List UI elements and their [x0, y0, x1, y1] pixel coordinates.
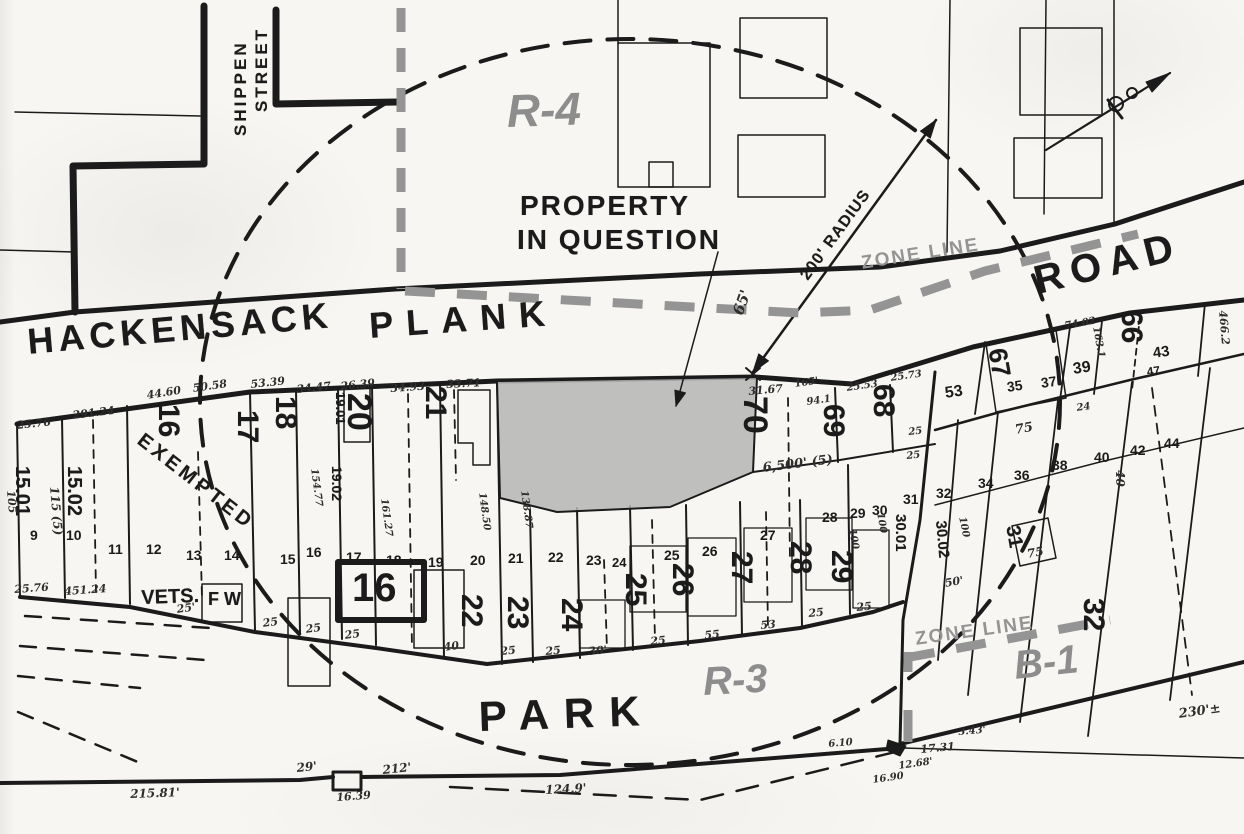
- dim-40-rot: 40: [1114, 470, 1126, 487]
- radius-arrowhead-bottom: [753, 354, 769, 372]
- fw-label: F W: [208, 590, 241, 608]
- building-outline: [738, 135, 825, 197]
- dim-466-2: 466.2: [1217, 310, 1231, 345]
- property-in-question-2: IN QUESTION: [517, 226, 721, 254]
- dim-25-76-top: 25.76: [16, 416, 51, 431]
- sublot-17: 17: [346, 550, 362, 564]
- bottom-street-line: [0, 748, 900, 783]
- property-line: [1044, 0, 1046, 214]
- dim-29-ft: 29': [296, 760, 318, 774]
- sublot-24: 24: [612, 556, 626, 569]
- lot-30-02: 30.02: [933, 520, 951, 559]
- sublot-25: 25: [664, 548, 680, 562]
- lot-23: 23: [502, 596, 532, 629]
- building-outline: [1020, 28, 1102, 115]
- dim-451-24: 451.24: [64, 583, 107, 597]
- sublot-40: 40: [1094, 450, 1110, 464]
- dim-26-39: 26.39: [340, 377, 375, 392]
- lot-32: 32: [1078, 598, 1108, 631]
- street-shippen-2: STREET: [253, 27, 270, 112]
- dim-25-f: 25: [500, 645, 516, 657]
- dim-25-d: 25: [305, 622, 322, 635]
- shippen-street-edge: [73, 6, 204, 312]
- lot-29: 29: [826, 550, 856, 583]
- sublot-32: 32: [936, 486, 952, 500]
- dim-105: 105: [5, 490, 18, 514]
- sublot-37: 37: [1040, 374, 1057, 390]
- building-outline: [458, 390, 490, 465]
- dim-25-j: 25: [856, 601, 872, 613]
- zone-b1: B-1: [1012, 639, 1080, 686]
- sublot-31: 31: [903, 492, 919, 506]
- sublot-14: 14: [224, 548, 240, 562]
- sublot-12: 12: [146, 542, 162, 556]
- property-in-question-parcel: [497, 377, 757, 512]
- property-line: [947, 0, 950, 252]
- lot-18: 18: [270, 396, 300, 429]
- lot-25: 25: [620, 573, 650, 606]
- dim-124-9: 124.9': [545, 782, 587, 796]
- property-in-question-1: PROPERTY: [520, 192, 690, 220]
- sublot-16: 16: [306, 545, 322, 559]
- sublot-21: 21: [508, 551, 524, 565]
- lot-20: 20: [342, 393, 376, 431]
- street-shippen: SHIPPEN: [232, 40, 249, 136]
- dim-16-39: 16.39: [336, 790, 371, 803]
- sublot-42: 42: [1130, 443, 1146, 457]
- lot-31-boxed: 31: [1002, 524, 1026, 549]
- sublot-39: 39: [1072, 360, 1092, 378]
- sublot-11: 11: [108, 542, 123, 556]
- bottom-street-monument: [333, 772, 361, 790]
- lot-22: 22: [456, 594, 486, 627]
- building-outline: [649, 162, 673, 187]
- sublot-26: 26: [702, 544, 718, 558]
- dim-25-h: 25: [650, 635, 666, 647]
- dim-25-a: 25: [908, 427, 923, 438]
- block-16: 16: [352, 568, 397, 608]
- sublot-44: 44: [1164, 436, 1180, 450]
- dim-75-lower: 75: [1026, 545, 1045, 560]
- dim-53-39: 53.39: [250, 375, 285, 390]
- sublot-13: 13: [186, 548, 202, 562]
- lot-19-02: 19.02: [330, 466, 344, 501]
- dim-17-31: 17.31: [920, 741, 955, 755]
- dim-53-b: 53: [760, 619, 776, 631]
- sublot-15: 15: [280, 552, 296, 566]
- lot-16: 16: [153, 404, 183, 437]
- block-30-lot-lines: [935, 368, 1244, 736]
- property-line: [15, 112, 200, 116]
- dim-30-ft: 30': [588, 644, 608, 657]
- dim-25-c: 25: [262, 616, 279, 629]
- sublot-29: 29: [850, 506, 866, 520]
- dim-75-upper: 75: [1014, 421, 1034, 437]
- dim-40-b: 40: [443, 640, 460, 653]
- zoning-map-scan: SHIPPENSTREETHACKENSACKPLANKROADPARKR-4R…: [0, 0, 1244, 834]
- lot-66: 66: [1116, 310, 1146, 343]
- sublot-35: 35: [1006, 378, 1023, 394]
- dim-25-ft: 25': [176, 601, 196, 614]
- dim-25-e: 25: [344, 628, 361, 641]
- sublot-38: 38: [1052, 458, 1068, 472]
- street-park: PARK: [478, 690, 655, 738]
- dashed-property-lines: [18, 616, 210, 765]
- radius-arrowhead-top: [921, 120, 937, 138]
- property-line: [0, 250, 75, 252]
- zone-r3: R-3: [702, 659, 768, 702]
- shippen-street-edge-2: [276, 10, 398, 104]
- sublot-9: 9: [30, 528, 38, 542]
- sublot-47: 47: [1146, 364, 1161, 378]
- zone-r4: R-4: [506, 85, 582, 134]
- dim-215-81: 215.81': [130, 786, 180, 800]
- lot-67: 67: [984, 346, 1015, 379]
- sublot-34: 34: [978, 476, 994, 490]
- building-outline: [1014, 138, 1102, 198]
- lot-26: 26: [667, 563, 697, 596]
- building-outline: [618, 43, 710, 187]
- dim-25-i: 25: [808, 607, 824, 619]
- dim-31-67: 31.67: [748, 383, 783, 397]
- dim-24-right: 24: [1076, 402, 1091, 414]
- north-arrow: [1046, 73, 1170, 150]
- lot-15-02: 15.02: [64, 466, 84, 516]
- sublot-19: 19: [428, 555, 444, 569]
- lot-24: 24: [556, 598, 586, 631]
- dim-50-ft: 50': [944, 575, 964, 589]
- sublot-22: 22: [548, 550, 564, 564]
- sublot-28: 28: [822, 510, 838, 524]
- dim-25-b: 25: [906, 451, 921, 462]
- dim-25-76-bottom: 25.76: [14, 582, 49, 595]
- dim-212-ft: 212': [382, 761, 412, 776]
- lot-17: 17: [232, 410, 262, 443]
- lot-27: 27: [726, 551, 756, 584]
- sublot-43: 43: [1152, 344, 1171, 361]
- dim-34-47: 34.47: [296, 380, 331, 395]
- dim-34-93: 34.93: [390, 381, 425, 394]
- sublot-53: 53: [944, 384, 964, 402]
- building-outline: [740, 18, 827, 98]
- sublot-23: 23: [586, 553, 602, 567]
- lot-70: 70: [738, 396, 772, 434]
- sublot-18: 18: [386, 553, 402, 567]
- dim-25-g: 25: [545, 645, 561, 657]
- dim-6-10: 6.10: [828, 738, 853, 750]
- lot-28: 28: [785, 541, 815, 574]
- sublot-36: 36: [1014, 468, 1030, 482]
- dim-33-71: 33.71: [446, 377, 481, 390]
- sublot-10: 10: [66, 528, 82, 542]
- lot-30-01: 30.01: [893, 514, 908, 552]
- lot-69: 69: [818, 404, 848, 437]
- sublot-20: 20: [470, 553, 486, 567]
- sublot-27: 27: [760, 528, 776, 542]
- dim-55: 55: [704, 629, 720, 641]
